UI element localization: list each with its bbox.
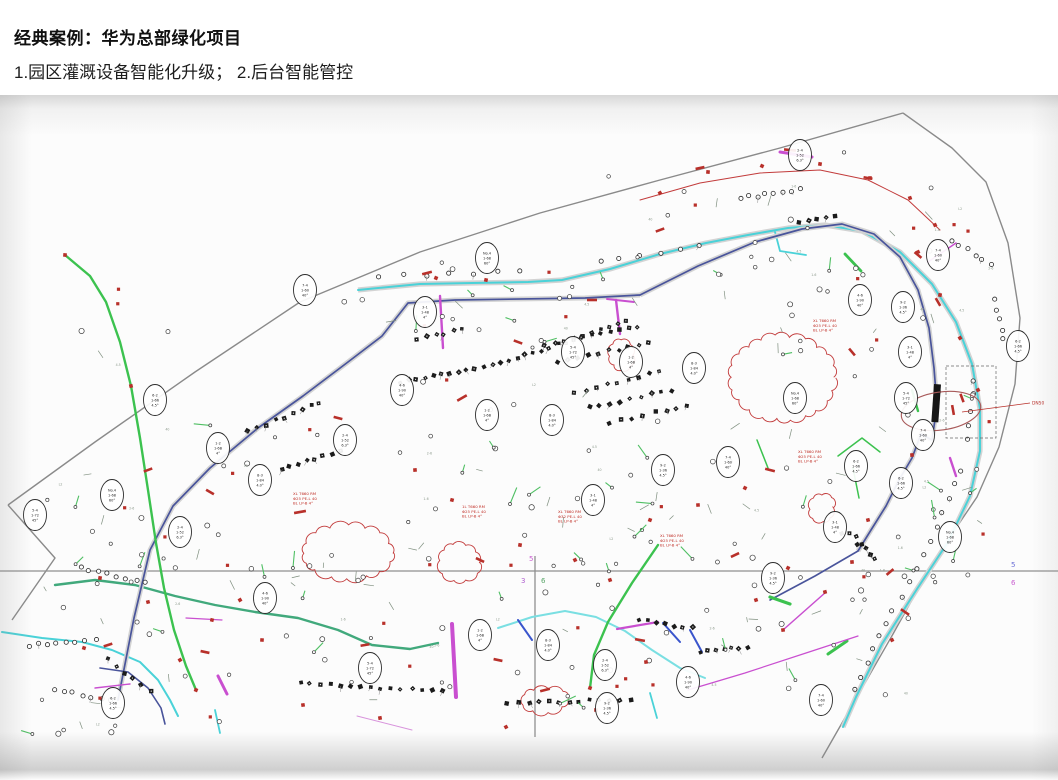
svg-text:1-72: 1-72	[366, 667, 374, 671]
svg-text:1-90: 1-90	[398, 389, 406, 393]
callout: 9-21-364.5°	[762, 563, 785, 594]
slide-title: 经典案例：华为总部绿化项目	[14, 24, 353, 49]
svg-text:40: 40	[920, 307, 924, 311]
svg-text:1-6B: 1-6B	[476, 634, 485, 638]
svg-text:1-68: 1-68	[108, 494, 116, 498]
svg-text:1-90: 1-90	[856, 299, 864, 303]
svg-text:60°: 60°	[484, 262, 490, 266]
svg-text:60°: 60°	[109, 499, 115, 503]
svg-text:7-4: 7-4	[302, 284, 308, 288]
svg-text:1-72: 1-72	[31, 514, 39, 518]
svg-text:DN50: DN50	[1032, 401, 1044, 407]
slide: { "header": { "title": "经典案例：华为总部绿化项目", …	[0, 0, 1058, 780]
callout: 3-11-484°	[414, 297, 437, 328]
svg-text:4.0°: 4.0°	[548, 424, 556, 428]
callout: 8-31-844.0°	[683, 353, 706, 384]
svg-text:4°: 4°	[591, 504, 595, 508]
svg-text:1-66: 1-66	[151, 399, 159, 403]
svg-text:3-1: 3-1	[590, 494, 596, 498]
svg-text:L2: L2	[244, 464, 248, 468]
svg-text:3: 3	[521, 577, 525, 585]
svg-text:4.5°: 4.5°	[109, 707, 117, 711]
svg-text:4.5: 4.5	[711, 683, 716, 687]
svg-text:1-2: 1-2	[215, 442, 221, 446]
svg-text:5-4: 5-4	[367, 662, 373, 666]
callout: No.41-6860°	[476, 243, 499, 274]
svg-text:BL LP-B 4°: BL LP-B 4°	[558, 519, 578, 524]
svg-text:1-36: 1-36	[769, 577, 777, 581]
callout: 4-61-9040°	[849, 285, 872, 316]
svg-text:7-4: 7-4	[818, 694, 824, 698]
match-lines: 56536	[0, 555, 1058, 737]
svg-text:1-72: 1-72	[569, 351, 577, 355]
svg-text:40°: 40°	[935, 259, 941, 263]
callout: 7-41-6040°	[294, 275, 317, 306]
svg-text:1-52: 1-52	[341, 439, 349, 443]
svg-text:BL LP-B 4°: BL LP-B 4°	[813, 328, 833, 333]
svg-text:6-2: 6-2	[853, 460, 859, 464]
svg-text:2-6: 2-6	[129, 507, 134, 511]
callout: 8-31-844.0°	[541, 405, 564, 436]
callout: 5-41-7245°	[359, 653, 382, 684]
svg-text:3-1: 3-1	[907, 346, 913, 350]
svg-text:1-90: 1-90	[261, 597, 269, 601]
svg-text:4.5: 4.5	[924, 480, 929, 484]
slide-subtitle: 1.园区灌溉设备智能化升级； 2.后台智能管控	[14, 58, 353, 83]
svg-text:4-6: 4-6	[399, 384, 405, 388]
svg-text:5-4: 5-4	[570, 346, 576, 350]
svg-text:4°: 4°	[833, 531, 837, 535]
svg-text:7-4: 7-4	[725, 456, 731, 460]
svg-text:1-36: 1-36	[899, 306, 907, 310]
svg-text:4.0°: 4.0°	[256, 484, 264, 488]
callout: 2-41-526.3°	[169, 517, 192, 548]
svg-text:1-66: 1-66	[109, 702, 117, 706]
svg-text:40: 40	[904, 692, 908, 696]
callout: 6-21-664.5°	[1007, 331, 1030, 362]
svg-text:1-60: 1-60	[934, 254, 942, 258]
callout: 4-61-9040°	[391, 375, 414, 406]
svg-text:40: 40	[861, 569, 865, 573]
callout: 6-21-664.5°	[845, 451, 868, 482]
svg-text:6.3°: 6.3°	[176, 536, 184, 540]
svg-text:1-6B: 1-6B	[483, 414, 492, 418]
svg-text:2-4: 2-4	[797, 149, 803, 153]
callout: 7-41-6040°	[717, 447, 740, 478]
svg-text:4.5: 4.5	[116, 363, 121, 367]
svg-text:BL LP-B 4°: BL LP-B 4°	[798, 459, 818, 464]
svg-text:BL LP-B 4°: BL LP-B 4°	[462, 514, 482, 519]
svg-text:7-4: 7-4	[920, 429, 926, 433]
svg-text:L2: L2	[59, 482, 63, 486]
svg-text:1-6: 1-6	[340, 618, 345, 622]
svg-text:1-36: 1-36	[659, 469, 667, 473]
svg-text:2-6: 2-6	[434, 643, 439, 647]
callout: 3-11-484°	[824, 512, 847, 543]
svg-text:4°: 4°	[216, 452, 220, 456]
callout: No.41-6860°	[101, 480, 124, 511]
svg-text:1-60: 1-60	[919, 434, 927, 438]
svg-text:1-84: 1-84	[690, 367, 699, 371]
svg-text:7-4: 7-4	[935, 249, 941, 253]
svg-text:40°: 40°	[857, 304, 863, 308]
svg-text:8-3: 8-3	[545, 639, 551, 643]
svg-text:1-60: 1-60	[301, 289, 309, 293]
svg-text:5-4: 5-4	[903, 392, 909, 396]
callout: 6-21-664.5°	[102, 688, 125, 719]
callout: 9-21-364.5°	[652, 455, 675, 486]
svg-text:40°: 40°	[920, 439, 926, 443]
svg-text:45°: 45°	[32, 519, 38, 523]
svg-text:1-52: 1-52	[796, 154, 804, 158]
svg-text:5: 5	[529, 555, 533, 563]
callout: 1-21-6B4°	[476, 400, 499, 431]
callout: 1-21-6B4°	[620, 347, 643, 378]
svg-text:40°: 40°	[818, 704, 824, 708]
svg-text:2-4: 2-4	[177, 526, 183, 530]
svg-text:6-2: 6-2	[1015, 340, 1021, 344]
svg-text:1-84: 1-84	[544, 644, 553, 648]
svg-text:1-66: 1-66	[1014, 345, 1022, 349]
svg-text:6: 6	[541, 577, 546, 585]
svg-text:4.5: 4.5	[959, 308, 964, 312]
svg-text:L2: L2	[532, 383, 536, 387]
svg-text:No.4: No.4	[946, 531, 955, 535]
svg-text:1-52: 1-52	[176, 531, 184, 535]
callout: 6-21-664.5°	[890, 468, 913, 499]
svg-text:8-3: 8-3	[691, 362, 697, 366]
svg-text:6.3°: 6.3°	[796, 159, 804, 163]
svg-text:2-4: 2-4	[602, 659, 608, 663]
callout: 4-61-9040°	[677, 667, 700, 698]
svg-text:8-3: 8-3	[257, 474, 263, 478]
svg-text:1-6: 1-6	[791, 184, 796, 188]
callout: 2-41-526.3°	[594, 650, 617, 681]
svg-text:L2: L2	[922, 485, 926, 489]
svg-text:1-66: 1-66	[852, 465, 860, 469]
callout: 9-21-364.5°	[596, 693, 619, 724]
svg-text:4.0°: 4.0°	[690, 372, 698, 376]
svg-text:1-84: 1-84	[548, 419, 557, 423]
site-plan-svg: 565364.52-6L2401-64.52-6L2401-64.52-6L24…	[0, 95, 1058, 780]
svg-text:6-2: 6-2	[898, 477, 904, 481]
callout: 1-21-6B4°	[207, 433, 230, 464]
svg-text:4.5°: 4.5°	[659, 474, 667, 478]
svg-text:4°: 4°	[485, 419, 489, 423]
callout: 7-41-6040°	[912, 420, 935, 451]
svg-text:1-60: 1-60	[724, 461, 732, 465]
svg-text:4.5°: 4.5°	[151, 404, 159, 408]
svg-text:9-2: 9-2	[900, 301, 906, 305]
svg-text:BL LP-B 4°: BL LP-B 4°	[293, 501, 313, 506]
svg-text:4.5°: 4.5°	[852, 470, 860, 474]
callout: No.41-6860°	[784, 383, 807, 414]
svg-text:6.3°: 6.3°	[341, 444, 349, 448]
svg-text:1-6: 1-6	[423, 497, 428, 501]
svg-text:8-3: 8-3	[549, 414, 555, 418]
svg-text:1-48: 1-48	[421, 311, 429, 315]
svg-text:4-6: 4-6	[262, 592, 268, 596]
svg-text:4°: 4°	[908, 356, 912, 360]
svg-text:L2: L2	[958, 207, 962, 211]
svg-text:1-48: 1-48	[831, 526, 839, 530]
callout: 3-11-484°	[899, 337, 922, 368]
svg-text:45°: 45°	[903, 402, 909, 406]
svg-text:BL LP-B 4°: BL LP-B 4°	[660, 543, 680, 548]
svg-text:4.5°: 4.5°	[899, 311, 907, 315]
svg-text:1-6: 1-6	[935, 228, 940, 232]
svg-text:6-2: 6-2	[152, 394, 158, 398]
svg-text:1-48: 1-48	[589, 499, 597, 503]
svg-text:L2: L2	[96, 722, 100, 726]
callout: 9-21-364.5°	[892, 292, 915, 323]
svg-text:4.5: 4.5	[796, 249, 801, 253]
callout: 4-61-9040°	[254, 583, 277, 614]
svg-text:1-52: 1-52	[601, 664, 609, 668]
svg-text:4.5: 4.5	[584, 302, 589, 306]
callout: 8-31-844.0°	[537, 630, 560, 661]
svg-text:40°: 40°	[302, 294, 308, 298]
svg-text:1-6: 1-6	[898, 546, 903, 550]
callout: 1-21-6B4°	[469, 620, 492, 651]
svg-text:L2: L2	[609, 537, 613, 541]
svg-text:4.0°: 4.0°	[544, 649, 552, 653]
svg-text:1-6B: 1-6B	[627, 361, 636, 365]
callout: 2-41-526.3°	[334, 425, 357, 456]
callout: 7-41-6040°	[927, 240, 950, 271]
svg-text:2-6: 2-6	[175, 602, 180, 606]
svg-text:40: 40	[165, 428, 169, 432]
svg-text:4.5°: 4.5°	[897, 487, 905, 491]
svg-text:1-6: 1-6	[880, 569, 885, 573]
callout: 2-41-526.3°	[789, 140, 812, 171]
svg-text:1-60: 1-60	[817, 699, 825, 703]
svg-text:1-6B: 1-6B	[214, 447, 223, 451]
svg-text:40: 40	[429, 645, 433, 649]
svg-text:40°: 40°	[399, 394, 405, 398]
svg-text:1-2: 1-2	[477, 629, 483, 633]
svg-text:4.5: 4.5	[754, 509, 759, 513]
svg-text:2-6: 2-6	[939, 419, 944, 423]
svg-text:2-6: 2-6	[988, 267, 993, 271]
svg-text:1-2: 1-2	[484, 409, 490, 413]
svg-text:40: 40	[564, 326, 568, 330]
svg-text:2-6: 2-6	[427, 452, 432, 456]
slide-header: 经典案例：华为总部绿化项目 1.园区灌溉设备智能化升级； 2.后台智能管控	[14, 24, 353, 83]
svg-text:4°: 4°	[423, 316, 427, 320]
svg-text:3-1: 3-1	[422, 306, 428, 310]
svg-text:1-90: 1-90	[684, 681, 692, 685]
irrigation-plan-image: 565364.52-6L2401-64.52-6L2401-64.52-6L24…	[0, 95, 1058, 780]
svg-text:40: 40	[648, 217, 652, 221]
svg-text:6: 6	[1011, 579, 1016, 587]
svg-text:45°: 45°	[367, 672, 373, 676]
svg-text:L2: L2	[496, 618, 500, 622]
svg-text:1-72: 1-72	[902, 397, 910, 401]
svg-text:5-4: 5-4	[32, 509, 38, 513]
svg-text:1-36: 1-36	[603, 707, 611, 711]
svg-text:4.5°: 4.5°	[1014, 350, 1022, 354]
revision-clouds	[302, 332, 837, 716]
svg-text:40°: 40°	[685, 686, 691, 690]
callout: 5-41-7245°	[562, 337, 585, 368]
svg-text:4°: 4°	[478, 639, 482, 643]
svg-text:1-2: 1-2	[628, 356, 634, 360]
svg-text:9-2: 9-2	[660, 464, 666, 468]
svg-text:9-2: 9-2	[770, 572, 776, 576]
svg-text:1-66: 1-66	[897, 482, 905, 486]
field-symbols: 4.52-6L2401-64.52-6L2401-64.52-6L2401-64…	[21, 151, 993, 737]
svg-text:No.4: No.4	[791, 392, 800, 396]
svg-text:4°: 4°	[629, 366, 633, 370]
svg-text:2-4: 2-4	[342, 434, 348, 438]
svg-text:4.5: 4.5	[592, 445, 597, 449]
svg-text:1-84: 1-84	[256, 479, 265, 483]
callout: 6-21-664.5°	[144, 385, 167, 416]
svg-text:1-68: 1-68	[946, 536, 954, 540]
callout: No.41-6860°	[939, 522, 962, 553]
svg-text:40°: 40°	[725, 466, 731, 470]
svg-text:5: 5	[1011, 561, 1015, 569]
callout: 7-41-6040°	[810, 685, 833, 716]
svg-text:1-68: 1-68	[791, 397, 799, 401]
svg-text:1-6: 1-6	[811, 273, 816, 277]
svg-text:4-6: 4-6	[685, 676, 691, 680]
svg-text:9-2: 9-2	[604, 702, 610, 706]
svg-text:4.5°: 4.5°	[769, 582, 777, 586]
callout: 5-41-7245°	[24, 500, 47, 531]
svg-text:45°: 45°	[570, 356, 576, 360]
svg-text:1-48: 1-48	[906, 351, 914, 355]
svg-text:40: 40	[597, 468, 601, 472]
svg-text:40°: 40°	[262, 602, 268, 606]
svg-text:No.4: No.4	[483, 252, 492, 256]
svg-text:1-68: 1-68	[483, 257, 491, 261]
svg-text:2-6: 2-6	[709, 626, 714, 630]
svg-text:3-1: 3-1	[832, 521, 838, 525]
callout: 8-31-844.0°	[249, 465, 272, 496]
svg-text:6.3°: 6.3°	[601, 669, 609, 673]
svg-text:6-2: 6-2	[110, 697, 116, 701]
callout: 3-11-484°	[582, 485, 605, 516]
svg-text:60°: 60°	[947, 541, 953, 545]
svg-text:4-6: 4-6	[857, 294, 863, 298]
callout: 5-41-7245°	[895, 383, 918, 414]
svg-text:60°: 60°	[792, 402, 798, 406]
svg-text:4.5°: 4.5°	[603, 712, 611, 716]
svg-text:No.4: No.4	[108, 489, 117, 493]
